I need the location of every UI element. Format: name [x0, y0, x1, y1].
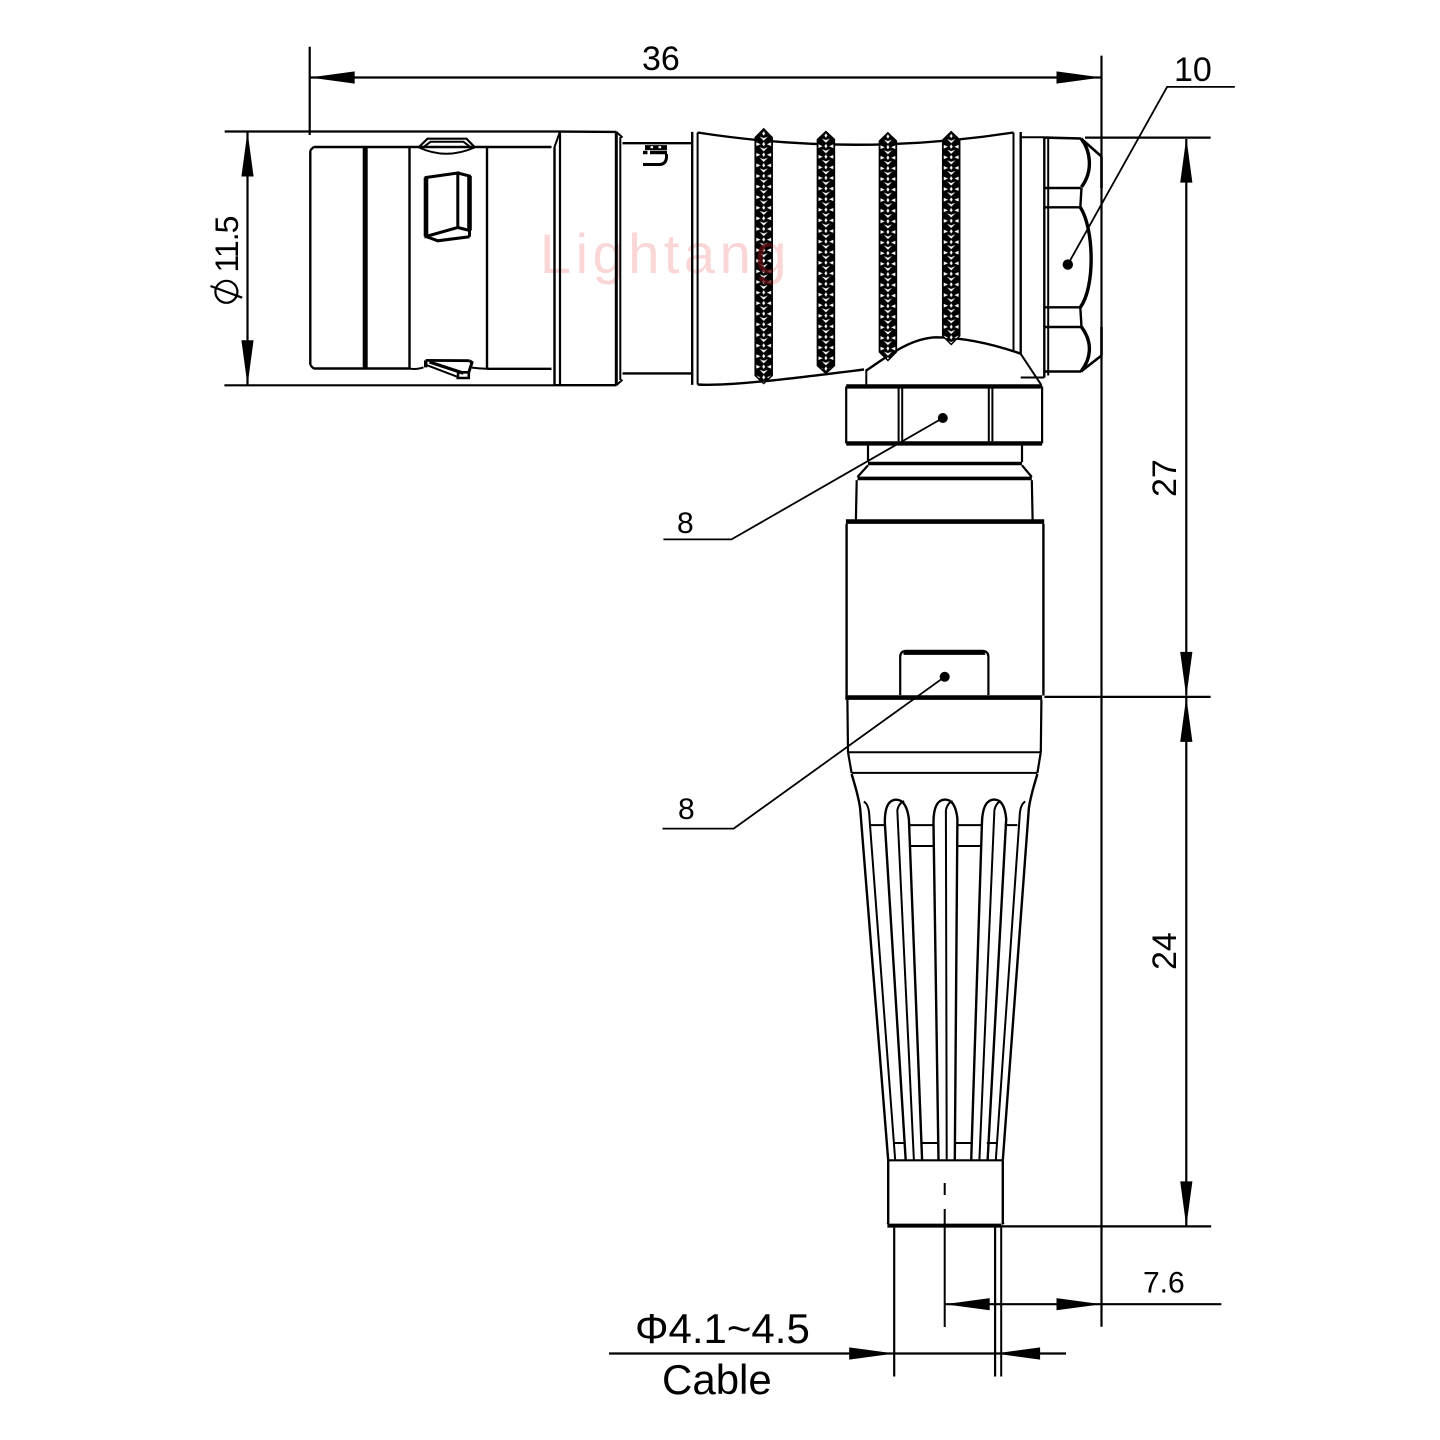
svg-text:8: 8	[677, 507, 694, 540]
svg-text:10: 10	[1174, 51, 1212, 89]
svg-text:11.5: 11.5	[209, 216, 245, 272]
svg-text:27: 27	[1146, 459, 1184, 497]
svg-text:7.6: 7.6	[1143, 1267, 1185, 1300]
svg-text:Φ4.1~4.5: Φ4.1~4.5	[635, 1305, 810, 1352]
svg-text:24: 24	[1146, 932, 1184, 970]
svg-text:Lightang: Lightang	[540, 222, 791, 285]
svg-text:Cable: Cable	[662, 1356, 772, 1403]
svg-text:36: 36	[642, 40, 680, 78]
svg-text:8: 8	[678, 793, 695, 826]
